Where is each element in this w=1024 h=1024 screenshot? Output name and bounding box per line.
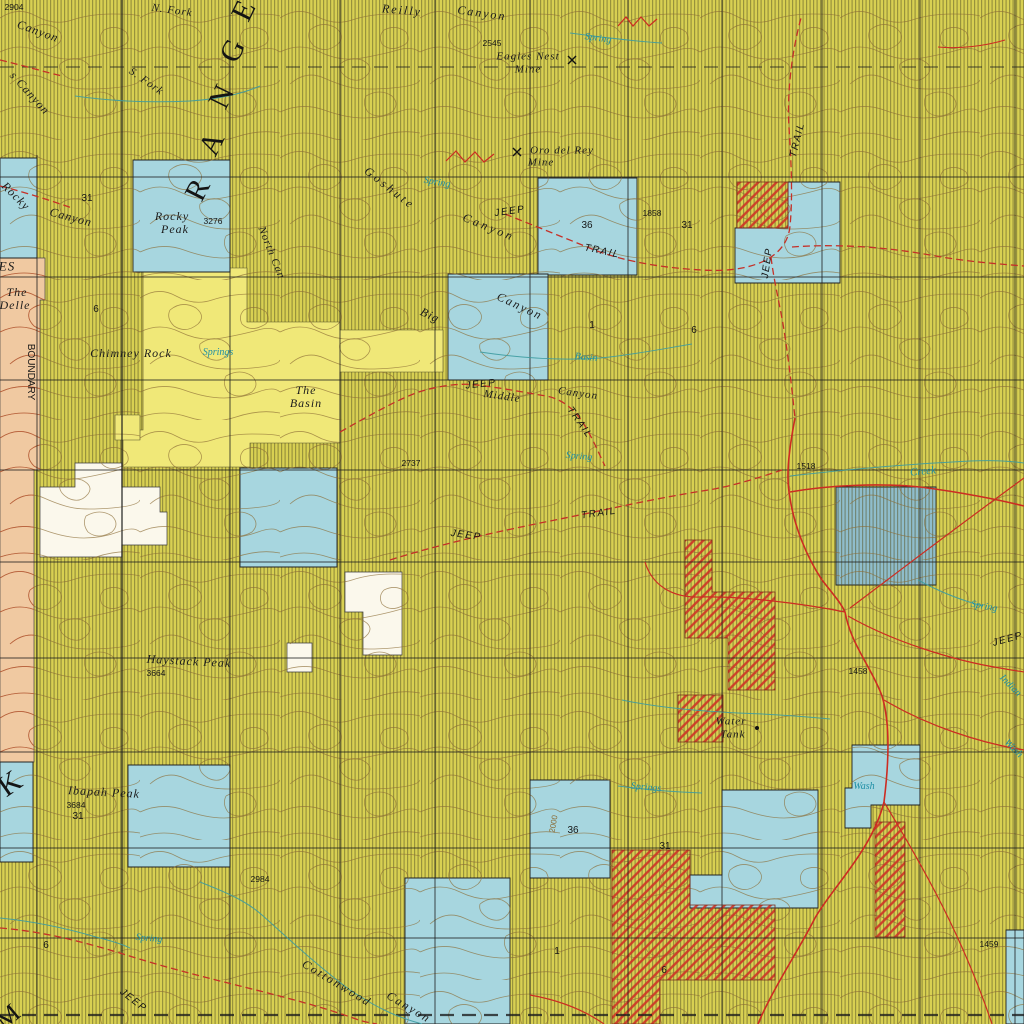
contour-lines xyxy=(0,0,1024,1024)
water-tank-dot-icon xyxy=(755,726,759,730)
red-hatch-parcel xyxy=(875,822,905,937)
topo-land-status-map: 2904Canyons CanyonN. ForkS. ForkReillyCa… xyxy=(0,0,1024,1024)
red-hatch-parcel xyxy=(737,182,788,228)
map-canvas xyxy=(0,0,1024,1024)
red-hatch-parcel xyxy=(678,695,723,742)
